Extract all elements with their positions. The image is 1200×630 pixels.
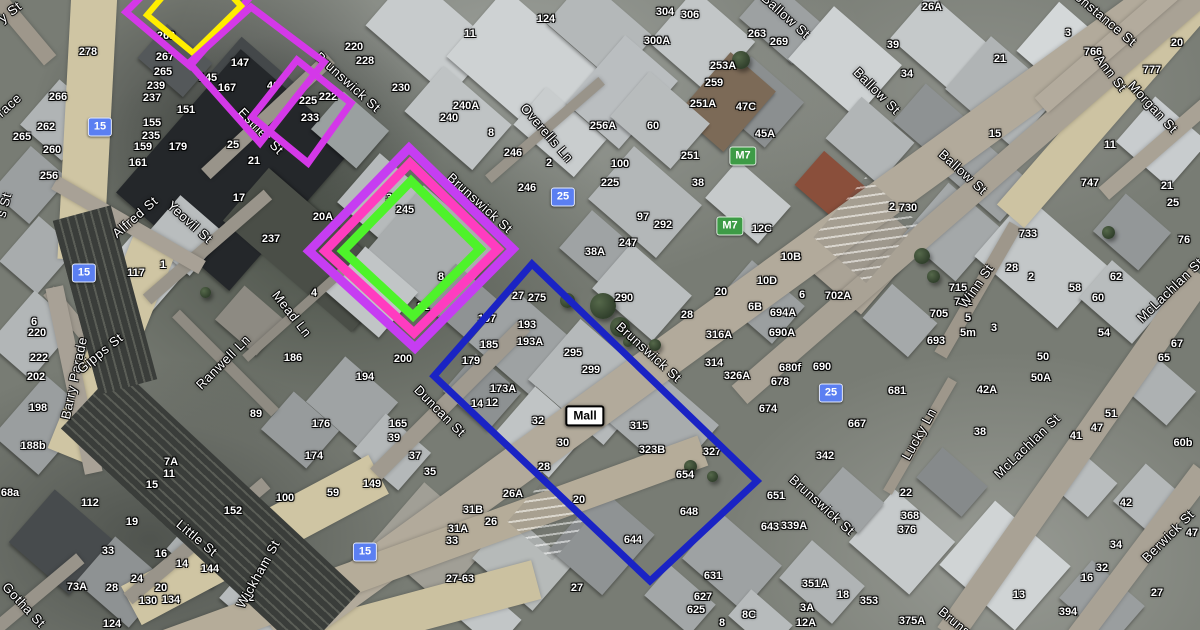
- boundary-overlays: [0, 0, 1200, 630]
- mall-poi-label[interactable]: Mall: [565, 405, 604, 426]
- overlay-polygon-magenta-square-225[interactable]: [252, 60, 351, 163]
- satellite-map-canvas[interactable]: y Straces StEsther StBrunswick StOverell…: [0, 0, 1200, 630]
